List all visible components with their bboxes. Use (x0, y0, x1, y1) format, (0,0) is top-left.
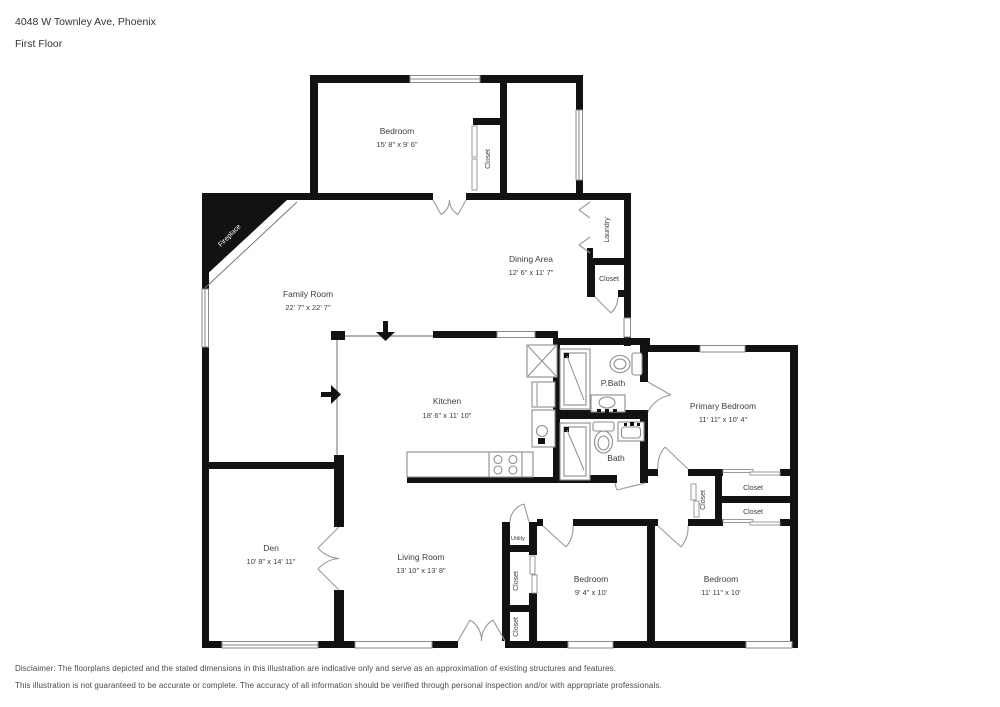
refrigerator (532, 382, 555, 407)
stove-fixture (489, 452, 522, 477)
bedroom-top-label: Bedroom (380, 126, 415, 136)
floorplan-drawing: Fireplace (0, 0, 1000, 707)
pbath-toilet (610, 353, 642, 375)
living-room-label: Living Room (397, 552, 444, 562)
bedroom-right-dims: 11' 11" x 10' (701, 588, 741, 597)
den-dims: 10' 8" x 14' 11" (247, 557, 296, 566)
dining-area-dims: 12' 6" x 11' 7" (509, 268, 554, 277)
kitchen-label: Kitchen (433, 396, 462, 406)
pbath-vanity (591, 395, 625, 413)
disclaimer-line-1: Disclaimer: The floorplans depicted and … (15, 664, 616, 673)
bedroom-left-label: Bedroom (574, 574, 609, 584)
floorplan-page: 4048 W Townley Ave, Phoenix First Floor (0, 0, 1000, 707)
closet-laundry-label: Closet (599, 276, 619, 283)
bath-shower (560, 423, 590, 480)
closet-bedroom-right-label: Closet (743, 509, 763, 516)
room-dividers (337, 336, 433, 455)
family-room-label: Family Room (283, 289, 333, 299)
pbath-shower (560, 349, 590, 409)
kitchen-dims: 18' 6" x 11' 10" (423, 411, 472, 420)
fireplace: Fireplace (203, 200, 297, 288)
closet-primary-label: Closet (743, 485, 763, 492)
closet-bedroom-top-label: Closet (485, 149, 492, 169)
bath-toilet (593, 422, 614, 453)
den-label: Den (263, 543, 279, 553)
disclaimer-line-2: This illustration is not guaranteed to b… (15, 681, 662, 690)
bedroom-left-dims: 9' 4" x 10' (575, 588, 608, 597)
flow-arrow-right-icon (321, 385, 341, 404)
family-room-dims: 22' 7" x 22' 7" (285, 303, 331, 312)
laundry-label: Laundry (604, 217, 611, 243)
closet-hall-label: Closet (700, 490, 707, 510)
bath-sink (618, 422, 644, 441)
primary-bedroom-dims: 11' 11" x 10' 4" (699, 415, 748, 424)
living-room-dims: 13' 10" x 13' 8" (396, 566, 446, 575)
bath-label: Bath (607, 453, 625, 463)
bedroom-right-label: Bedroom (704, 574, 739, 584)
pbath-label: P.Bath (601, 378, 626, 388)
closet-bottom-label: Closet (513, 617, 520, 637)
dining-area-label: Dining Area (509, 254, 553, 264)
utility-label: Utility (511, 536, 525, 542)
flow-arrow-down-icon (376, 321, 395, 341)
bedroom-top-dims: 15' 8" x 9' 6" (376, 140, 417, 149)
closet-mid-label: Closet (513, 571, 520, 591)
primary-bedroom-label: Primary Bedroom (690, 401, 756, 411)
